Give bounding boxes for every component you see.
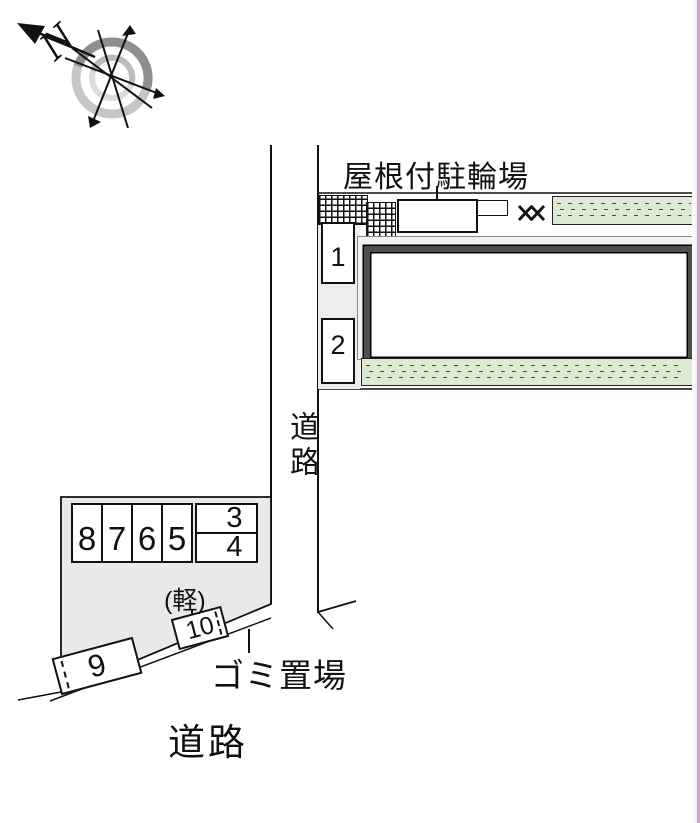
site-plan: N 1 2 8 7 6 5 3 4 (0, 0, 700, 823)
space-1-number: 1 (330, 242, 345, 273)
compass-north-label: N (30, 14, 85, 70)
light-vehicle-label: (軽) (164, 581, 206, 617)
plan-linework: N (0, 0, 700, 823)
space-2-number: 2 (330, 330, 345, 361)
parking-space-7: 7 (101, 503, 133, 563)
lot-edge-extension (18, 692, 61, 700)
compass-arrowhead-down-left (88, 116, 101, 128)
stall-column-3-4: 3 4 (195, 503, 258, 563)
gate-x-symbol (519, 206, 544, 220)
utility-box (477, 200, 508, 216)
hatched-area-2 (366, 202, 396, 240)
space-9-number: 9 (84, 646, 110, 685)
parking-space-2: 2 (321, 318, 355, 384)
compass-rose (65, 25, 165, 128)
road-side-label: 道路 (279, 411, 323, 481)
stall-row-8-to-5: 8 7 6 5 (71, 503, 191, 563)
road-corner-line (318, 612, 333, 629)
parking-space-9: 9 (52, 637, 143, 695)
parking-space-4: 4 (195, 532, 258, 563)
building-outline (364, 246, 694, 364)
road-bottom-label: 道路 (168, 712, 248, 766)
space-7-number: 7 (108, 520, 126, 558)
covered-bicycle-parking-label: 屋根付駐輪場 (343, 152, 529, 196)
planting-strip-top (552, 196, 694, 225)
parking-space-5: 5 (161, 503, 193, 563)
right-edge-border (692, 0, 700, 823)
parking-space-3: 3 (195, 503, 258, 534)
hatched-area-1 (318, 195, 368, 225)
space-8-number: 8 (78, 520, 96, 558)
space-9-dash-marker (61, 661, 70, 689)
space-6-number: 6 (138, 520, 156, 558)
parking-space-6: 6 (131, 503, 163, 563)
compass-arrowhead-up (122, 25, 136, 36)
bicycle-parking-box (397, 199, 478, 233)
planting-strip-bottom (361, 358, 693, 386)
compass-arrowhead-right (153, 88, 165, 99)
space-5-number: 5 (168, 520, 186, 558)
parking-space-1: 1 (321, 222, 355, 284)
north-arrow: N (17, 14, 95, 70)
garbage-place-label: ゴミ置場 (211, 649, 347, 697)
parking-space-8: 8 (71, 503, 103, 563)
space-4-number: 4 (226, 531, 242, 564)
southeast-parcel-edge (318, 601, 356, 612)
